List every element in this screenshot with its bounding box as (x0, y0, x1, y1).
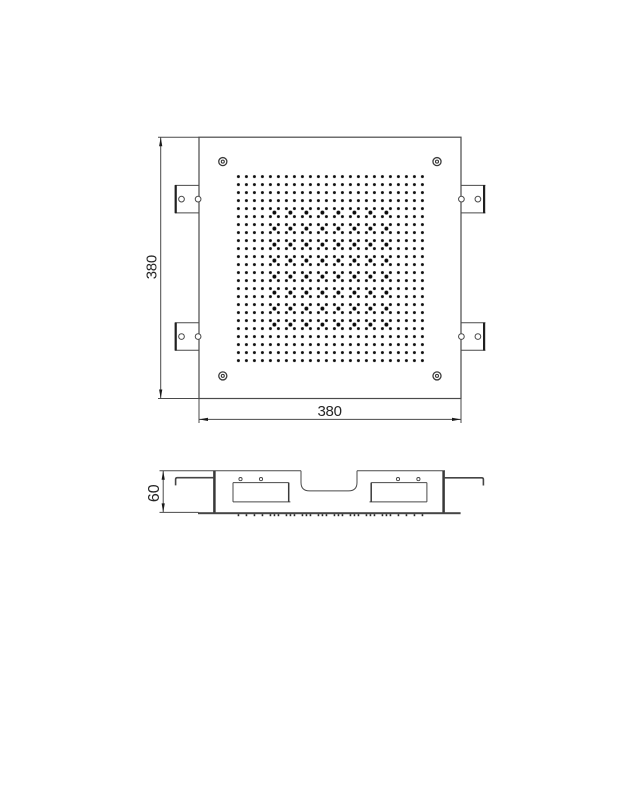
svg-text:60: 60 (146, 484, 163, 502)
svg-text:380: 380 (143, 255, 160, 279)
svg-text:380: 380 (318, 403, 342, 420)
